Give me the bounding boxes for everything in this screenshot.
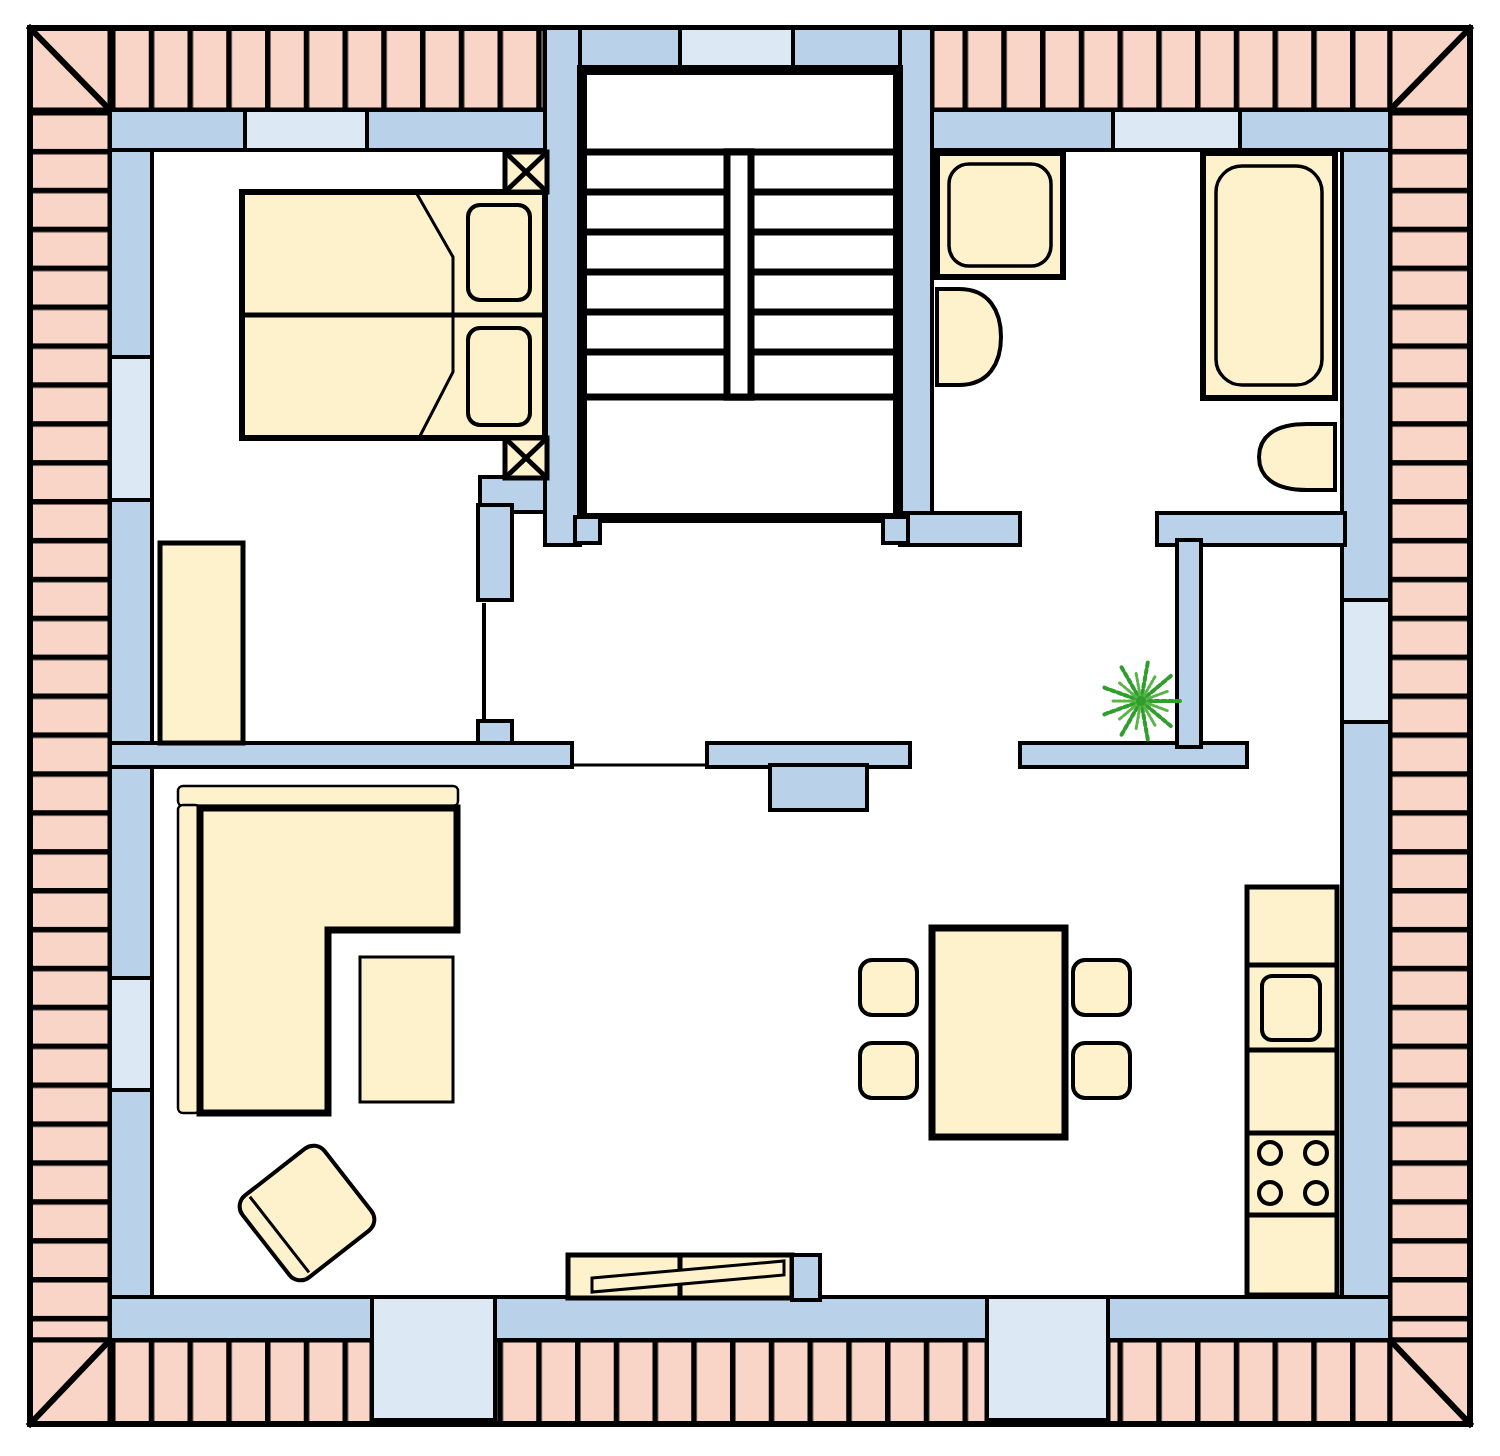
- washbasin: [937, 289, 1001, 385]
- wall-bottom-right: [1108, 1297, 1390, 1340]
- nightstand-x: [505, 152, 547, 192]
- stairwell-wall-right: [900, 28, 932, 545]
- armchair: [234, 1140, 380, 1286]
- palm-plant-icon: [1103, 662, 1181, 741]
- dining-chair: [1073, 960, 1130, 1015]
- bedroom-livingroom-wall: [110, 743, 572, 767]
- roof-band-top-left: [110, 28, 545, 110]
- roof-band-right: [1390, 110, 1470, 1340]
- wall-bottom-center: [495, 1297, 987, 1340]
- nightstand-x: [505, 438, 547, 478]
- wall-left: [110, 150, 152, 1297]
- roof-band-bottom-right: [1108, 1340, 1390, 1424]
- right-window: [1342, 600, 1390, 722]
- roof-band-top-right: [932, 28, 1390, 110]
- armchair-seat: [234, 1140, 380, 1286]
- left-window-upper: [110, 357, 152, 500]
- dining-table: [932, 928, 1065, 1137]
- bedroom-window: [245, 110, 367, 150]
- pillow: [468, 328, 530, 425]
- bathroom-window: [1113, 110, 1240, 150]
- interior-walls: [110, 477, 1345, 810]
- storage-room-wall: [1177, 540, 1201, 747]
- bedroom-wall-lower: [478, 505, 512, 600]
- bedroom: [160, 152, 547, 743]
- chimney-stub: [770, 765, 867, 810]
- stair-stringer: [727, 152, 751, 397]
- wall-stub: [792, 1255, 820, 1300]
- shower-basin: [949, 164, 1051, 266]
- stairwell: [575, 70, 908, 543]
- floor-plan-page: [0, 0, 1500, 1456]
- stair-door-jamb-right: [883, 517, 908, 543]
- wardrobe: [160, 543, 243, 743]
- wall-bottom-left: [110, 1297, 372, 1340]
- stairwell-wall-top-right: [793, 28, 900, 68]
- dining-chair: [860, 1043, 917, 1098]
- kitchen: [1247, 887, 1337, 1295]
- coffee-table: [360, 957, 453, 1102]
- terrace-door-left: [372, 1297, 495, 1420]
- dining-chair: [1073, 1043, 1130, 1098]
- roof-band-bottom-center: [495, 1340, 987, 1424]
- stairwell-window: [680, 28, 793, 68]
- stair-door-jamb-left: [575, 517, 600, 543]
- hall-livingroom-wall-right: [1020, 743, 1247, 767]
- palm-center: [1136, 696, 1146, 706]
- bathroom: [937, 153, 1335, 490]
- dining-chair: [860, 960, 917, 1015]
- kitchen-counter: [1247, 887, 1337, 1295]
- floor-plan-canvas: [0, 0, 1500, 1456]
- terrace-door-right: [987, 1297, 1108, 1420]
- bathtub-basin: [1216, 166, 1322, 385]
- kitchen-sink: [1262, 976, 1320, 1040]
- roof-band-bottom-left: [110, 1340, 372, 1424]
- bathroom-wall-bottom-left: [900, 513, 1020, 545]
- toilet: [1259, 424, 1335, 490]
- stairwell-wall-left: [545, 28, 580, 545]
- living-room: [178, 786, 1130, 1300]
- stairwell-wall-top-left: [580, 28, 680, 68]
- roof-band-left: [30, 110, 110, 1340]
- left-window-lower: [110, 978, 152, 1090]
- pillow: [468, 205, 530, 300]
- sofa-back-rail-top: [178, 786, 458, 806]
